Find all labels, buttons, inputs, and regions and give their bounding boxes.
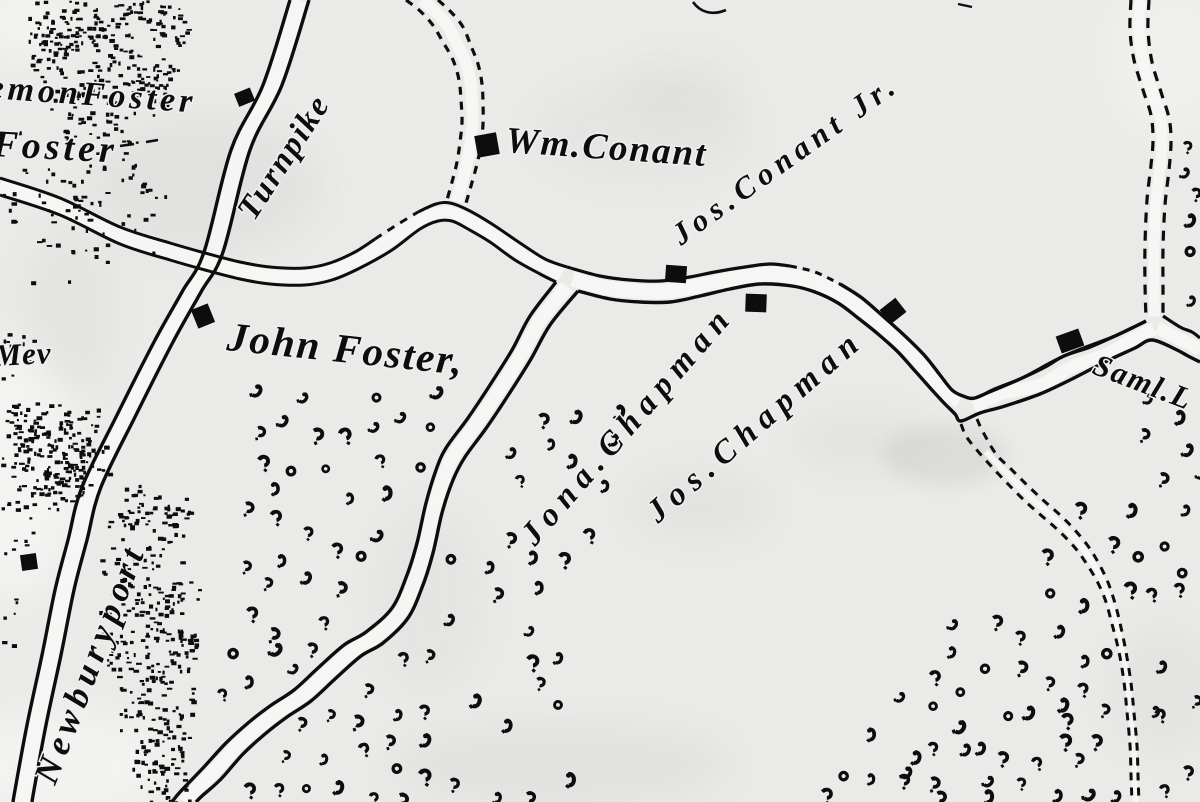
svg-text:Foster: Foster (0, 123, 119, 172)
svg-text:Mev: Mev (0, 335, 53, 373)
